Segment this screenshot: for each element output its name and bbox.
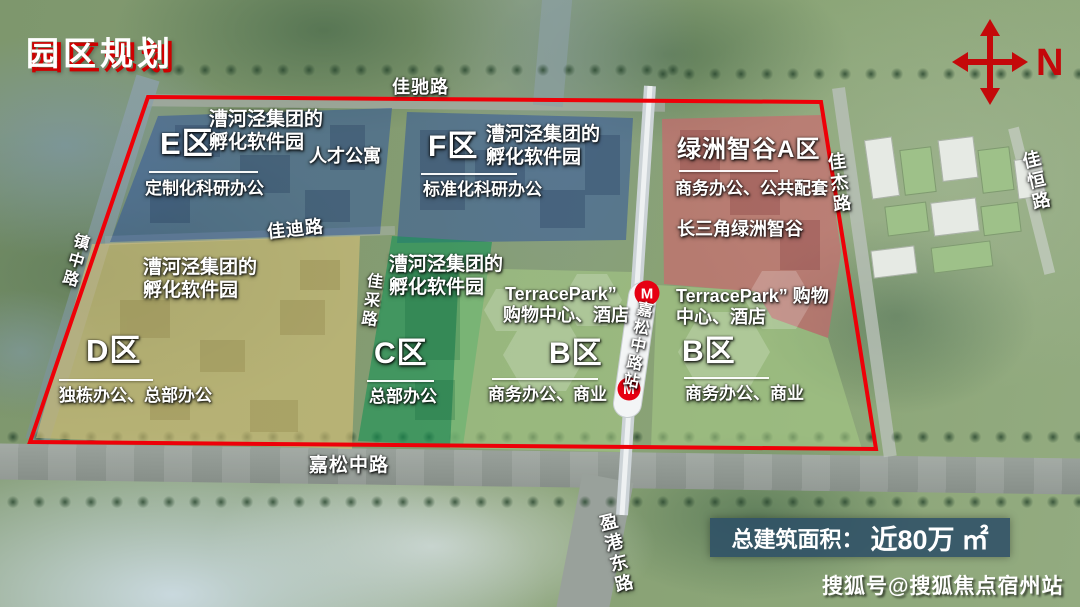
page-title: 园区规划	[26, 27, 174, 75]
zone-a-rule	[679, 170, 778, 172]
total-area-label: 总建筑面积：	[731, 522, 863, 554]
zone-c-desc: 总部办公	[369, 387, 437, 407]
zone-a-name: 绿洲智谷A区	[677, 136, 820, 165]
total-area-unit: ㎡	[962, 518, 989, 557]
zone-e-rule	[149, 171, 258, 173]
zone-d-desc: 独栋办公、总部办公	[59, 386, 212, 406]
zone-f-org-line1: 漕河泾集团的	[486, 124, 600, 147]
zone-e-org-line2: 孵化软件园	[209, 132, 304, 155]
zone-f-org-line2: 孵化软件园	[486, 147, 581, 170]
zone-f-desc: 标准化科研办公	[423, 180, 542, 200]
total-area-badge: 总建筑面积： 近80万 ㎡	[710, 518, 1010, 557]
zone-e-org-line1: 漕河泾集团的	[209, 109, 323, 132]
zone-d-org-line2: 孵化软件园	[143, 280, 238, 303]
park-plan-map: M M N 园区规划 佳驰路 佳迪路 佳采路 镇中路 嘉松中路 盈港东路 佳杰路…	[0, 0, 1080, 607]
zone-b1-mall-line2: 购物中心、酒店	[503, 305, 629, 327]
zone-e-apartment: 人才公寓	[309, 146, 381, 168]
zone-d-rule	[59, 379, 153, 381]
compass-north-icon: N	[952, 19, 1063, 105]
zone-d-name: D区	[86, 332, 141, 369]
zone-f-name: F区	[428, 129, 478, 165]
watermark-sohu: 搜狐号@搜狐焦点宿州站	[822, 570, 1063, 600]
zone-b2-mall-line2: 中心、酒店	[676, 307, 766, 329]
zone-b2-desc: 商务办公、商业	[685, 384, 804, 404]
zone-b2-name: B区	[682, 334, 736, 370]
zone-b1-rule	[492, 378, 598, 380]
zone-b2-mall-line1: TerracePark” 购物	[676, 286, 829, 308]
total-area-value: 近80万	[870, 518, 954, 557]
road-label-jiasong: 嘉松中路	[309, 455, 389, 478]
zone-b1-mall-line1: TerracePark”	[505, 284, 617, 306]
road-label-jiachi: 佳驰路	[392, 77, 449, 99]
zone-b2-rule	[684, 377, 769, 379]
zone-b1-name: B区	[549, 336, 603, 372]
svg-text:N: N	[1036, 42, 1063, 84]
zone-f-rule	[421, 173, 517, 175]
zone-a-desc: 商务办公、公共配套	[675, 179, 828, 199]
zone-c-name: C区	[374, 336, 428, 372]
zone-d-org-line1: 漕河泾集团的	[143, 257, 257, 280]
zone-b1-desc: 商务办公、商业	[488, 385, 607, 405]
zone-c-org-line2: 孵化软件园	[389, 277, 484, 300]
zone-a-sub: 长三角绿洲智谷	[677, 219, 803, 241]
zone-c-org-line1: 漕河泾集团的	[389, 254, 503, 277]
zone-e-desc: 定制化科研办公	[145, 179, 264, 199]
zone-e-name: E区	[160, 125, 214, 162]
zone-c-rule	[367, 380, 434, 382]
